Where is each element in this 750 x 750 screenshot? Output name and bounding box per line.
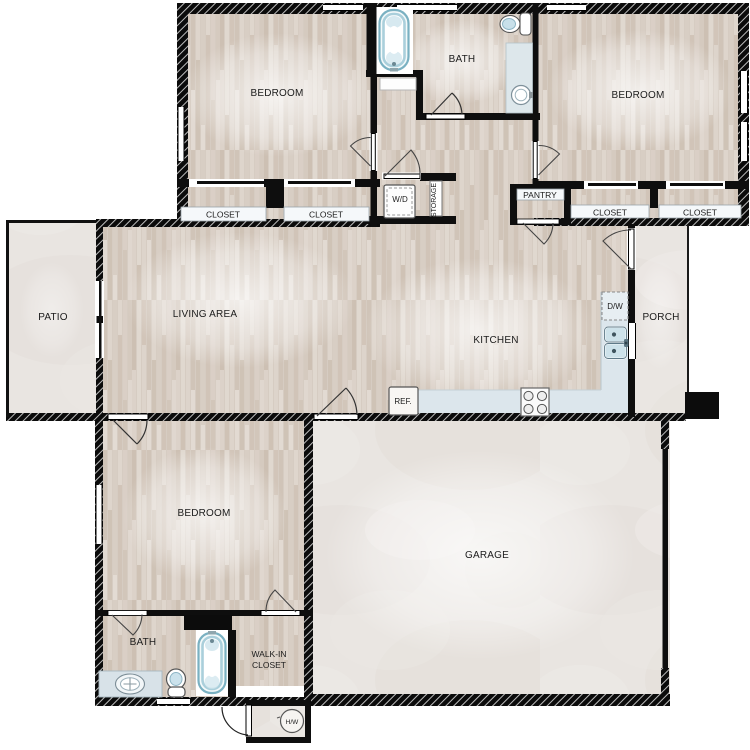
svg-text:GARAGE: GARAGE	[465, 550, 509, 561]
svg-text:KITCHEN: KITCHEN	[473, 335, 518, 346]
svg-text:BEDROOM: BEDROOM	[250, 88, 303, 99]
svg-text:PANTRY: PANTRY	[523, 190, 557, 200]
svg-text:WALK-IN: WALK-IN	[251, 649, 286, 659]
svg-text:LIVING AREA: LIVING AREA	[173, 309, 238, 320]
svg-text:BEDROOM: BEDROOM	[611, 90, 664, 101]
svg-text:PORCH: PORCH	[642, 312, 679, 323]
svg-text:BEDROOM: BEDROOM	[177, 508, 230, 519]
svg-text:H/W: H/W	[286, 719, 300, 726]
svg-text:CLOSET: CLOSET	[206, 210, 240, 220]
svg-text:BATH: BATH	[130, 637, 157, 648]
svg-text:PATIO: PATIO	[38, 312, 68, 323]
svg-text:W/D: W/D	[392, 195, 408, 204]
svg-text:CLOSET: CLOSET	[309, 210, 343, 220]
svg-text:CLOSET: CLOSET	[252, 660, 286, 670]
svg-text:CLOSET: CLOSET	[683, 208, 717, 218]
svg-text:CLOSET: CLOSET	[593, 208, 627, 218]
svg-text:D/W: D/W	[607, 302, 623, 311]
svg-text:REF.: REF.	[394, 397, 411, 406]
svg-text:BATH: BATH	[449, 54, 476, 65]
svg-text:STORAGE: STORAGE	[431, 183, 438, 217]
